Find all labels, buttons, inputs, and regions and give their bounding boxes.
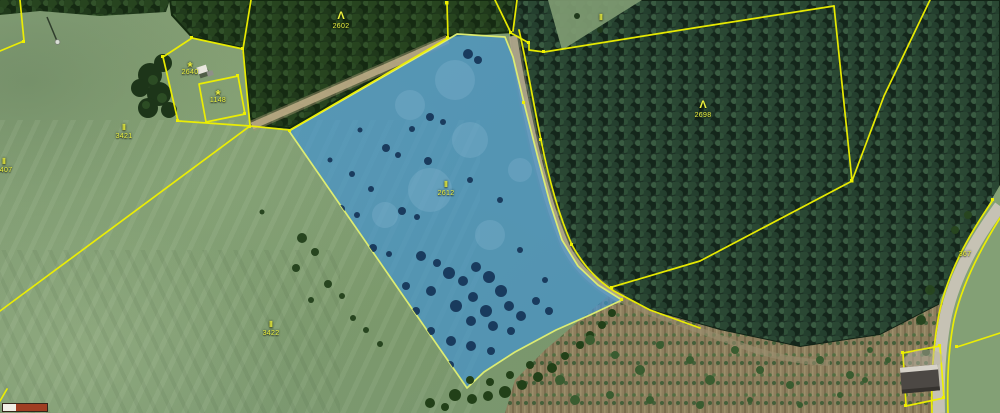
- map-viewport[interactable]: Λ2602Λ2698Ⅱ2612Ⅱ3421Ⅱ3407Ⅱ3422*2640*1148…: [0, 0, 1000, 413]
- scalebar-segment: [16, 404, 47, 411]
- map-scalebar: [2, 403, 48, 412]
- scalebar-segment: [3, 404, 16, 411]
- orthophoto-and-cadastre-overlay: [0, 0, 1000, 413]
- farm-buildings: [196, 65, 213, 79]
- utility-pole: [47, 17, 60, 44]
